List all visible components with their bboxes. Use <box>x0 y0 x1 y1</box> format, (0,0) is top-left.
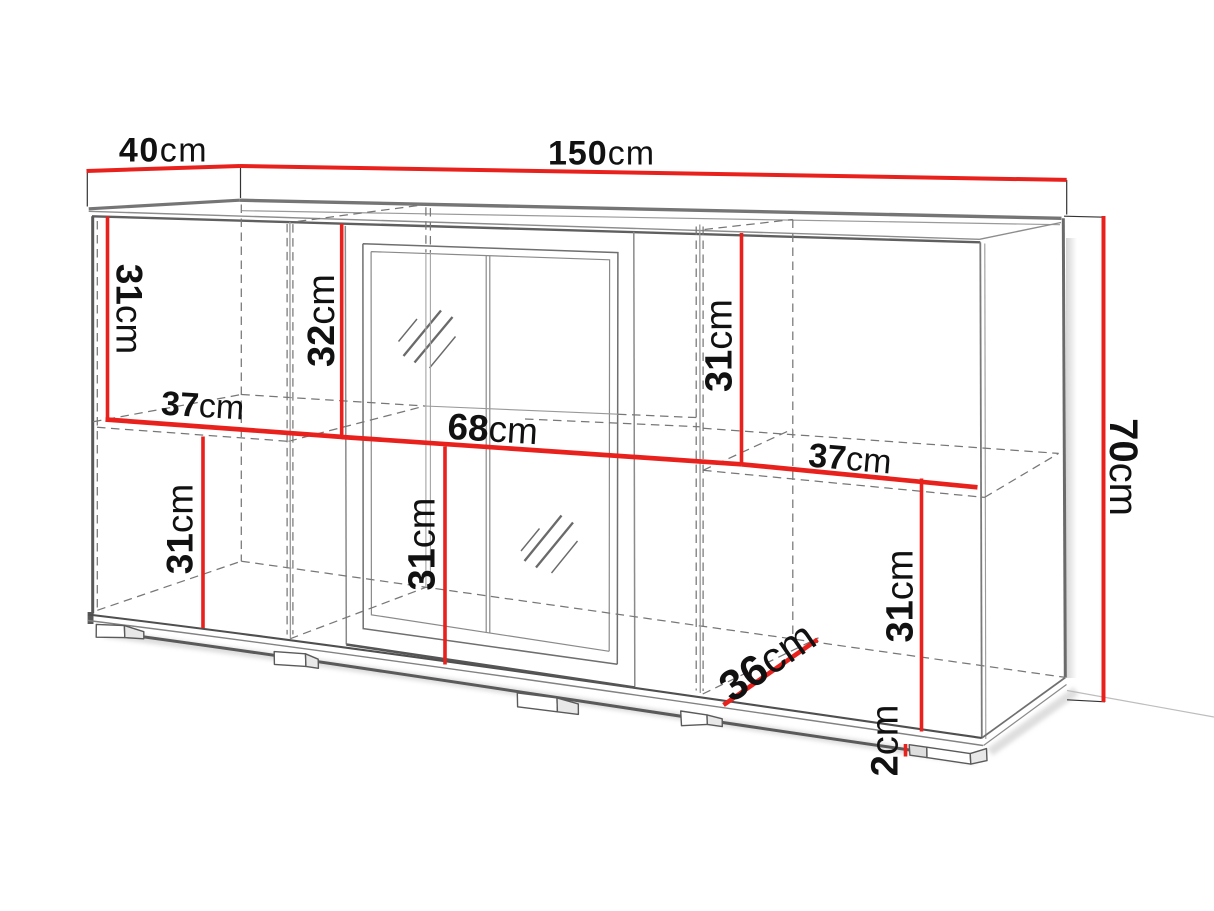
svg-text:2cm: 2cm <box>865 705 907 777</box>
svg-text:31cm: 31cm <box>159 484 200 574</box>
svg-text:68cm: 68cm <box>446 406 539 452</box>
svg-text:31cm: 31cm <box>880 550 922 643</box>
svg-text:31cm: 31cm <box>109 264 150 354</box>
svg-text:70cm: 70cm <box>1101 418 1145 516</box>
svg-text:31cm: 31cm <box>402 498 444 591</box>
svg-text:31cm: 31cm <box>699 299 741 392</box>
svg-text:37cm: 37cm <box>160 385 245 428</box>
svg-text:37cm: 37cm <box>807 436 893 481</box>
svg-text:32cm: 32cm <box>301 274 343 367</box>
svg-text:150cm: 150cm <box>548 135 655 173</box>
svg-text:40cm: 40cm <box>119 132 208 170</box>
